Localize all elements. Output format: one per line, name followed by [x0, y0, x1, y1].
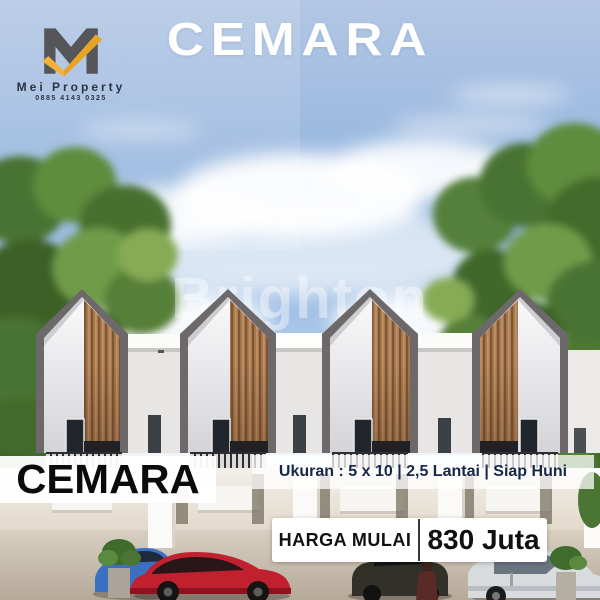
brand-phone: 0885 4143 0325 [8, 95, 134, 102]
property-ad: Brighton [0, 0, 600, 600]
price-value: 830 Juta [420, 518, 547, 562]
price-label: HARGA MULAI [272, 518, 418, 562]
specs-bar: Ukuran : 5 x 10 | 2,5 Lantai | Siap Huni [252, 455, 594, 489]
mei-property-logo-icon [38, 24, 104, 78]
price-box: HARGA MULAI 830 Juta [272, 518, 547, 562]
project-name: CEMARA [16, 456, 200, 503]
specs-text: Ukuran : 5 x 10 | 2,5 Lantai | Siap Huni [279, 463, 567, 481]
brand-name: Mei Property [8, 80, 134, 94]
project-name-box: CEMARA [0, 456, 216, 503]
brand-block: Mei Property 0885 4143 0325 [8, 24, 134, 102]
